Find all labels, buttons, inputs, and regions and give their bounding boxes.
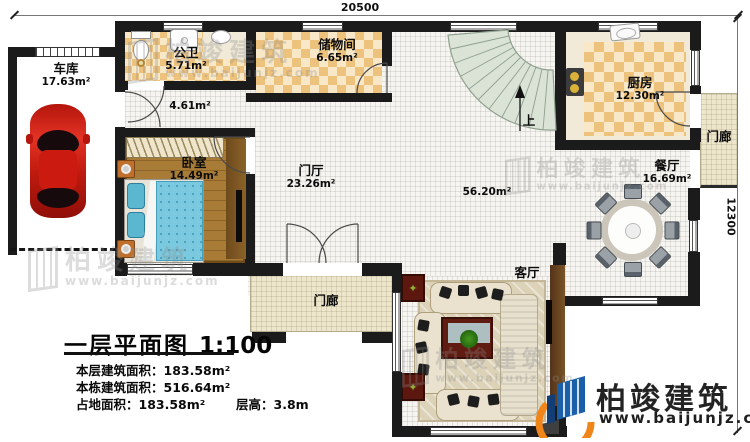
stat-value: 3.8m <box>274 397 309 412</box>
dimension-width: 20500 <box>341 1 379 14</box>
room-label-living: 客厅 <box>514 266 539 280</box>
stat-label: 层高： <box>236 397 274 412</box>
watermark-logo-icon <box>28 246 58 292</box>
company-website: www.baijunjz.com <box>599 409 750 427</box>
sink-basin <box>616 27 637 40</box>
door-opening <box>115 92 125 127</box>
side-table: ✦ <box>401 274 425 302</box>
sofa-pillow <box>467 395 480 408</box>
wall <box>8 47 17 255</box>
window <box>302 22 343 31</box>
shower-drain <box>181 37 188 44</box>
plan-scale: 1:100 <box>199 333 272 359</box>
door-opening <box>128 81 164 90</box>
stat-label: 本栋建筑面积： <box>76 380 164 395</box>
dining-table-center <box>625 223 641 239</box>
stat-label: 本层建筑面积： <box>76 363 164 378</box>
bathroom-sink <box>211 30 231 44</box>
plant-icon: ✦ <box>408 381 417 394</box>
nightstand <box>117 160 135 178</box>
room-label-garage: 车库17.63m² <box>42 62 91 88</box>
door-opening <box>245 137 255 174</box>
dining-chair <box>665 222 680 240</box>
wall <box>193 263 283 276</box>
wall <box>688 188 700 220</box>
door-opening <box>283 263 362 276</box>
wardrobe <box>126 137 224 158</box>
wall <box>115 263 127 276</box>
car-roof <box>39 150 77 190</box>
stairs-up-label: 上 <box>523 114 536 128</box>
floor-plan: ✦ ✦ 车库17.63m² 公卫5.71m² 储物间6.65m² 4.61m² … <box>0 0 750 442</box>
plant <box>460 330 478 348</box>
window <box>691 50 700 86</box>
nightstand-lamp <box>121 244 131 254</box>
car <box>30 104 86 218</box>
room-label-bedroom: 卧室14.49m² <box>170 156 219 182</box>
wall <box>690 128 701 142</box>
wall <box>382 21 392 66</box>
dining-chair <box>587 222 602 240</box>
room-label-porch-bottom: 门廊 <box>313 294 338 308</box>
room-label-kitchen: 厨房12.30m² <box>616 76 665 102</box>
bedroom-tv <box>236 190 242 242</box>
nightstand-lamp <box>121 164 131 174</box>
room-area-living: 56.20m² <box>463 186 512 198</box>
plan-title-text: 一层平面图 <box>64 333 189 359</box>
pillow <box>127 183 145 209</box>
floor-drain <box>137 59 145 67</box>
company-logo-icon <box>527 370 599 438</box>
door-opening <box>690 94 701 128</box>
window <box>450 22 517 31</box>
window <box>602 297 658 305</box>
car-mirror <box>26 134 33 144</box>
title-underline <box>64 352 234 355</box>
wall <box>115 128 255 137</box>
wall <box>555 140 700 150</box>
stat-value: 516.64m² <box>164 380 231 395</box>
room-label-storage: 储物间6.65m² <box>316 38 357 64</box>
window <box>127 264 193 275</box>
window <box>689 220 698 252</box>
wall <box>690 86 701 94</box>
stat-footprint-and-height: 占地面积：183.58m² 层高：3.8m <box>76 394 309 413</box>
stat-label: 占地面积： <box>76 397 139 412</box>
kitchen-sink <box>609 22 641 41</box>
nightstand <box>117 240 135 258</box>
wall <box>555 21 566 140</box>
wall <box>553 243 566 265</box>
side-table: ✦ <box>401 373 425 401</box>
dimension-depth: 12300 <box>725 197 738 235</box>
stove <box>566 68 584 96</box>
sofa-pillow <box>417 319 430 332</box>
room-label-foyer: 门厅23.26m² <box>287 164 336 190</box>
sofa-pillow <box>487 393 499 405</box>
garage-door <box>35 47 100 57</box>
stat-value: 183.58m² <box>139 397 206 412</box>
room-label-hallway: 4.61m² <box>169 100 210 112</box>
bed-duvet <box>156 181 203 261</box>
dining-chair <box>624 184 642 199</box>
sofa-pillow <box>458 285 469 296</box>
plant-icon: ✦ <box>408 282 417 295</box>
burner <box>570 72 579 81</box>
window <box>392 292 401 372</box>
dimension-line-top <box>14 15 740 16</box>
wall <box>690 21 701 50</box>
sofa-pillow <box>491 288 504 301</box>
wall <box>246 93 392 102</box>
stat-value: 183.58m² <box>164 363 231 378</box>
garage-dashed-line <box>10 248 116 251</box>
window <box>430 427 527 436</box>
porch-column <box>362 332 396 343</box>
burner <box>570 84 579 93</box>
pillow <box>127 212 145 238</box>
dimension-tick <box>733 426 742 435</box>
tv <box>546 300 552 344</box>
room-label-dining: 餐厅16.69m² <box>643 159 692 185</box>
room-label-porch-right: 门廊 <box>706 130 731 144</box>
car-mirror <box>83 134 90 144</box>
room-label-bathroom: 公卫5.71m² <box>165 46 206 72</box>
wall <box>246 21 256 90</box>
sofa-pillow <box>415 341 428 354</box>
toilet <box>131 31 151 39</box>
coffee-table <box>441 317 493 359</box>
dining-chair <box>624 262 642 277</box>
